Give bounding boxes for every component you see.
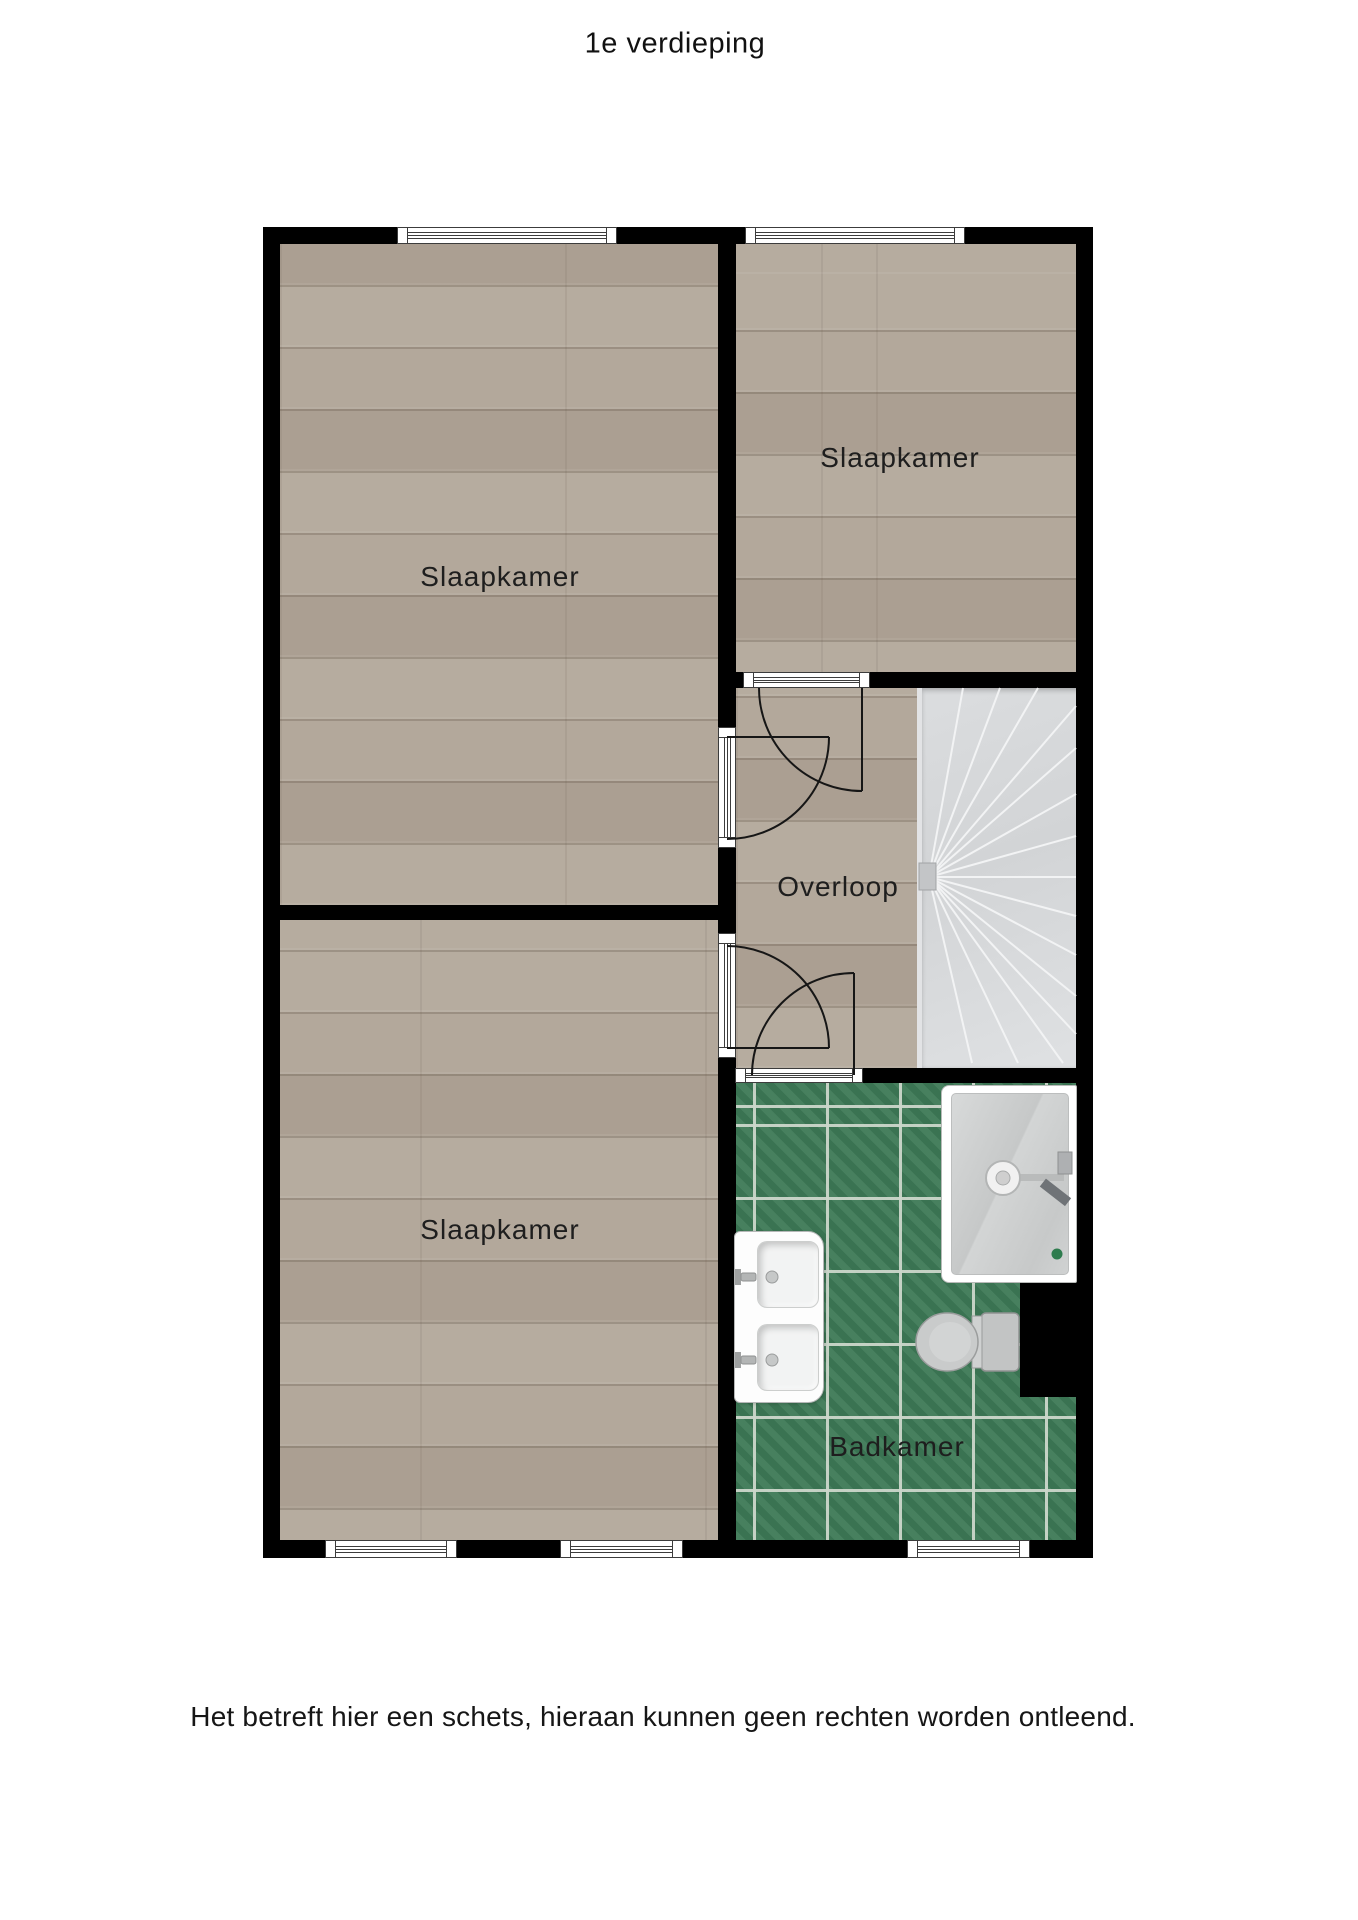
window-top-right [745, 227, 965, 244]
wall-divider-vertical-upper [718, 244, 736, 727]
door-bedroom-bottom-left [718, 933, 736, 1058]
door-bedroom-top-right [743, 672, 870, 688]
disclaimer-text: Het betreft hier een schets, hieraan kun… [190, 1701, 1135, 1733]
wall-bathroom-top [863, 1068, 1076, 1083]
room-label-bedroom-top-left: Slaapkamer [420, 561, 579, 593]
washbasin-left-bowl [757, 1241, 819, 1308]
washbasin-right-bowl [757, 1324, 819, 1391]
window-bathroom [907, 1540, 1030, 1558]
wall-bottom-segment-4 [1030, 1540, 1093, 1558]
wall-bottom-segment-3 [683, 1540, 907, 1558]
wall-exterior-left [263, 227, 280, 1558]
wall-exterior-right [1076, 227, 1093, 1558]
window-top-left [397, 227, 617, 244]
wall-bottom-segment-2 [457, 1540, 560, 1558]
wall-bedroom2-stub [736, 672, 743, 688]
shower-tray [951, 1093, 1069, 1275]
door-bathroom [735, 1068, 863, 1083]
room-label-landing: Overloop [777, 871, 899, 903]
duct-shaft [1020, 1283, 1077, 1397]
window-bottom-left-2 [560, 1540, 683, 1558]
page-title: 1e verdieping [585, 28, 766, 61]
door-bedroom-top-left [718, 727, 736, 848]
wall-top-segment-3 [965, 227, 1093, 244]
stairs [917, 688, 1081, 1068]
room-label-bedroom-bottom-left: Slaapkamer [420, 1214, 579, 1246]
wall-between-left-bedrooms [280, 905, 718, 920]
wall-top-segment-1 [263, 227, 397, 244]
wall-top-segment-2 [617, 227, 745, 244]
double-washbasin [734, 1231, 824, 1403]
room-label-bathroom: Badkamer [829, 1431, 965, 1463]
window-bottom-left-1 [325, 1540, 457, 1558]
room-label-bedroom-top-right: Slaapkamer [820, 442, 979, 474]
floorplan-page: 1e verdieping [0, 0, 1358, 1920]
wall-bedroom2-bottom [870, 672, 1076, 688]
wall-divider-vertical-middle [718, 848, 736, 933]
wall-bottom-segment-1 [263, 1540, 325, 1558]
